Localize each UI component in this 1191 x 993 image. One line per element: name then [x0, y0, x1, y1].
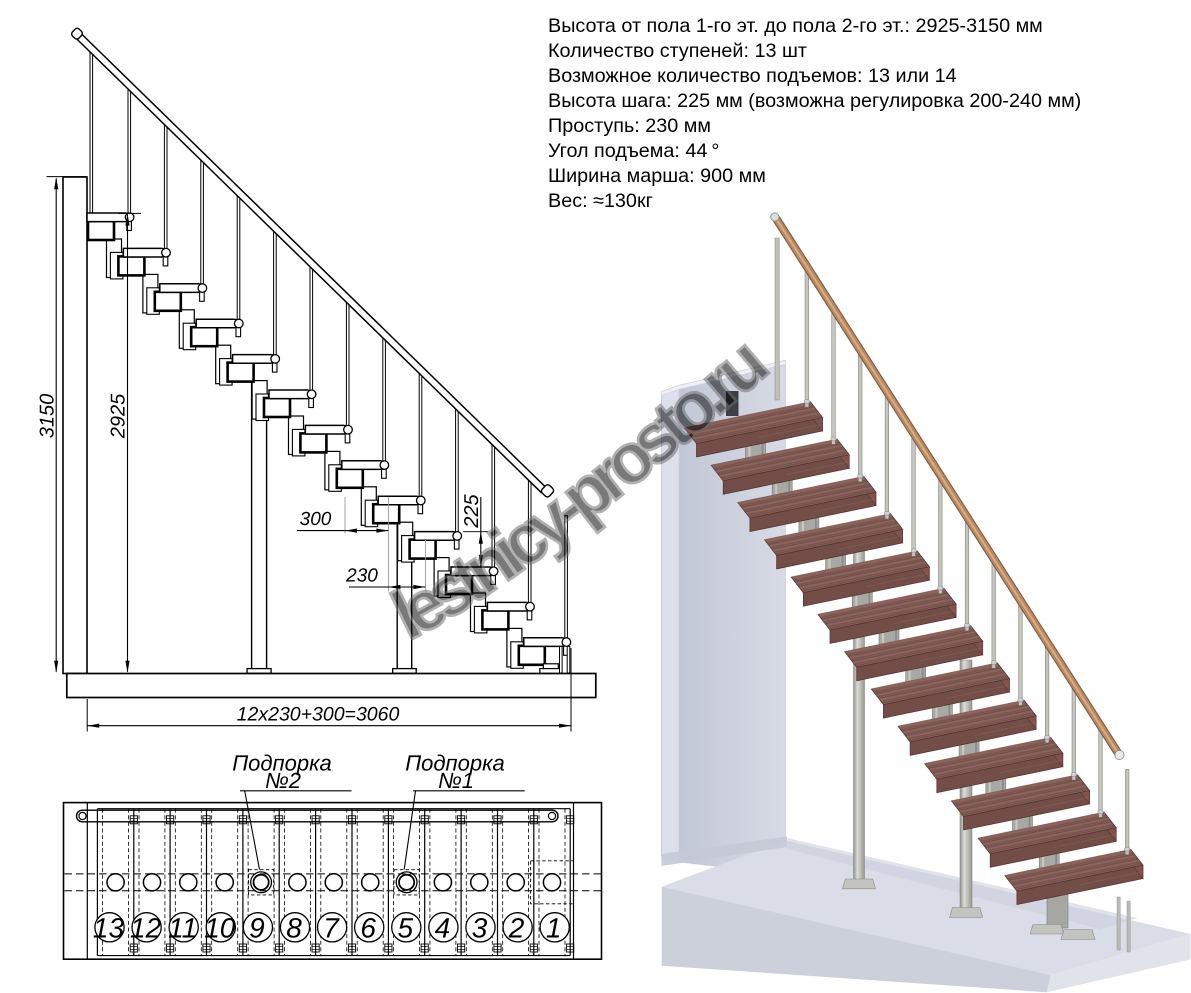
- svg-text:5: 5: [398, 912, 414, 943]
- svg-text:12: 12: [130, 912, 162, 943]
- svg-text:3150: 3150: [37, 394, 59, 439]
- svg-text:1: 1: [546, 912, 562, 943]
- svg-text:2925: 2925: [108, 393, 130, 439]
- svg-text:230: 230: [345, 566, 378, 587]
- svg-text:7: 7: [323, 912, 340, 943]
- svg-text:№2: №2: [265, 768, 301, 793]
- svg-text:12x230+300=3060: 12x230+300=3060: [237, 704, 400, 726]
- svg-text:225: 225: [461, 493, 483, 528]
- svg-text:2: 2: [508, 912, 525, 943]
- svg-text:11: 11: [168, 912, 197, 943]
- svg-text:13: 13: [93, 912, 125, 943]
- svg-text:8: 8: [286, 912, 302, 943]
- svg-text:6: 6: [360, 912, 376, 943]
- svg-text:9: 9: [249, 912, 265, 943]
- svg-text:300: 300: [300, 509, 332, 530]
- svg-text:№1: №1: [438, 768, 474, 793]
- svg-text:3: 3: [472, 912, 488, 943]
- svg-text:4: 4: [435, 912, 451, 943]
- svg-text:10: 10: [204, 912, 236, 943]
